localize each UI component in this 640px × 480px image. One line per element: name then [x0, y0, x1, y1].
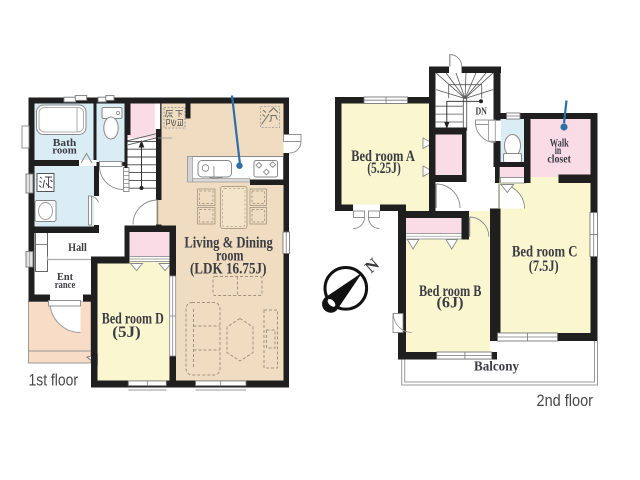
svg-text:(6J): (6J) — [437, 295, 464, 312]
svg-text:rance: rance — [55, 279, 76, 291]
svg-text:(5.25J): (5.25J) — [367, 160, 401, 177]
svg-text:DN: DN — [475, 107, 487, 118]
svg-text:Balcony: Balcony — [474, 360, 519, 375]
svg-text:(5J): (5J) — [112, 324, 141, 341]
svg-text:1st floor: 1st floor — [29, 372, 79, 390]
svg-text:room: room — [52, 144, 77, 156]
svg-text:2nd floor: 2nd floor — [537, 392, 594, 410]
svg-text:(7.5J): (7.5J) — [529, 258, 559, 275]
svg-text:Hall: Hall — [68, 240, 87, 254]
svg-text:closet: closet — [547, 152, 571, 166]
svg-text:(LDK 16.75J): (LDK 16.75J) — [190, 260, 267, 277]
